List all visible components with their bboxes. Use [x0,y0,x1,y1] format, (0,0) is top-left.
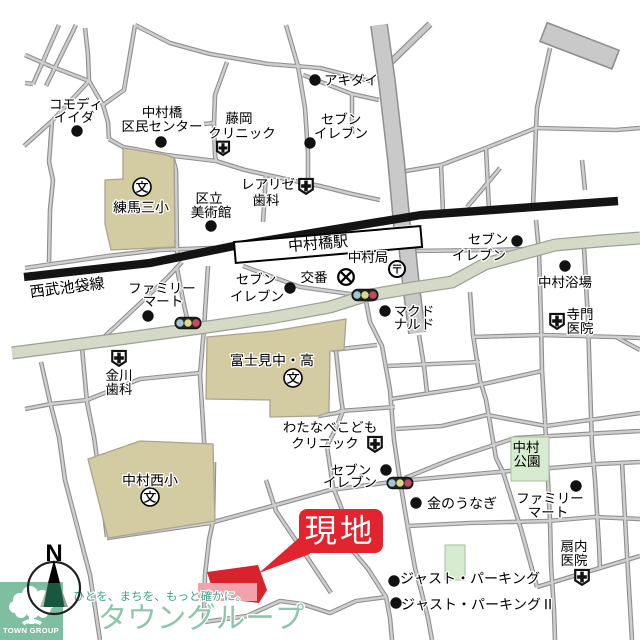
svg-text:TOWN GROUP: TOWN GROUP [3,626,59,635]
